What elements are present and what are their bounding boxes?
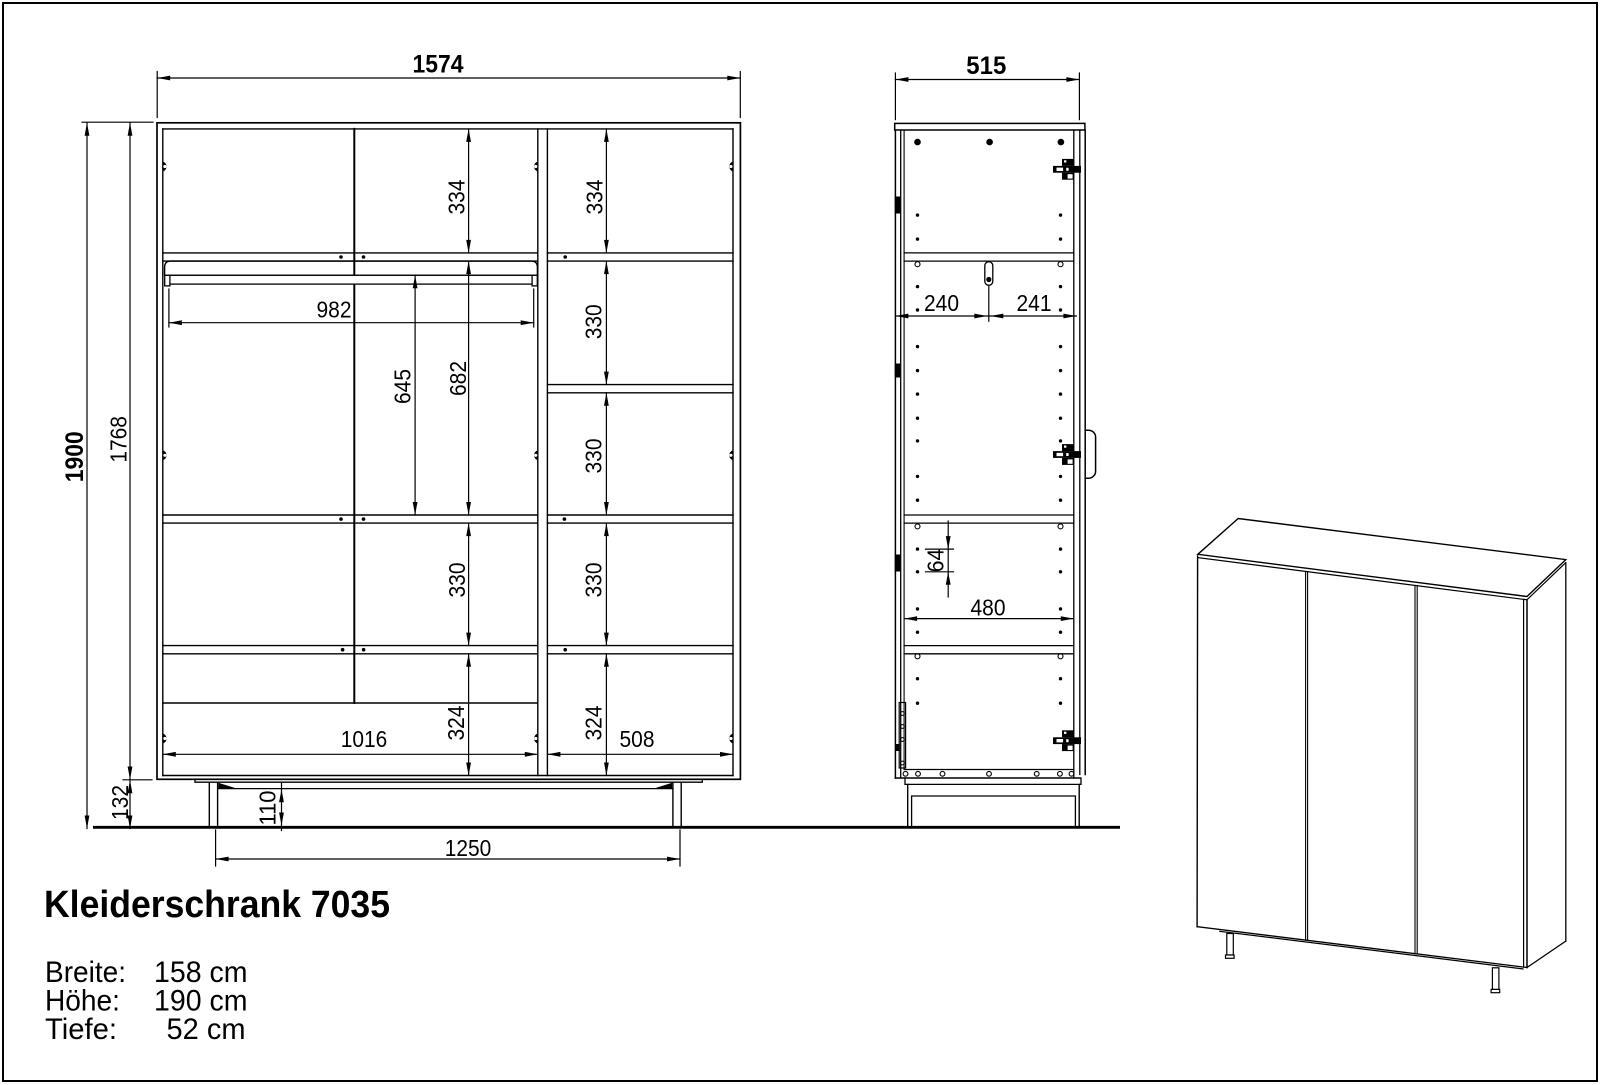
svg-text:Tiefe:: Tiefe: <box>45 1013 117 1046</box>
svg-text:Kleiderschrank 7035: Kleiderschrank 7035 <box>44 884 390 926</box>
svg-text:1250: 1250 <box>445 835 492 861</box>
svg-text:241: 241 <box>1017 290 1052 316</box>
svg-text:324: 324 <box>581 705 607 740</box>
svg-text:324: 324 <box>443 705 469 740</box>
svg-text:508: 508 <box>620 726 655 752</box>
svg-text:132: 132 <box>107 785 133 820</box>
svg-text:330: 330 <box>444 563 470 598</box>
svg-text:52 cm: 52 cm <box>167 1013 246 1046</box>
svg-text:334: 334 <box>581 179 607 214</box>
svg-text:682: 682 <box>445 361 471 396</box>
svg-text:480: 480 <box>971 595 1006 621</box>
svg-text:110: 110 <box>255 791 281 826</box>
svg-text:1016: 1016 <box>341 726 388 752</box>
svg-text:240: 240 <box>924 290 959 316</box>
svg-text:1574: 1574 <box>413 51 464 79</box>
svg-text:982: 982 <box>317 297 352 323</box>
svg-text:1768: 1768 <box>106 416 132 463</box>
svg-text:330: 330 <box>581 304 607 339</box>
svg-text:334: 334 <box>444 179 470 214</box>
svg-text:330: 330 <box>581 439 607 474</box>
svg-text:645: 645 <box>390 369 416 404</box>
svg-text:64: 64 <box>923 549 949 573</box>
svg-text:515: 515 <box>966 52 1006 80</box>
svg-text:1900: 1900 <box>61 431 89 482</box>
svg-text:330: 330 <box>581 563 607 598</box>
